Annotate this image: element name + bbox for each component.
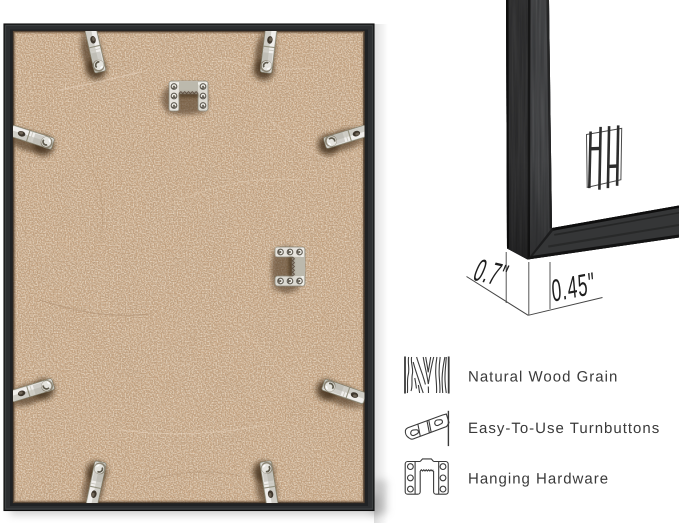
svg-text:Hanging Hardware: Hanging Hardware <box>468 471 609 488</box>
svg-text:Easy-To-Use Turnbuttons: Easy-To-Use Turnbuttons <box>468 420 660 437</box>
svg-text:Natural Wood Grain: Natural Wood Grain <box>468 369 618 386</box>
